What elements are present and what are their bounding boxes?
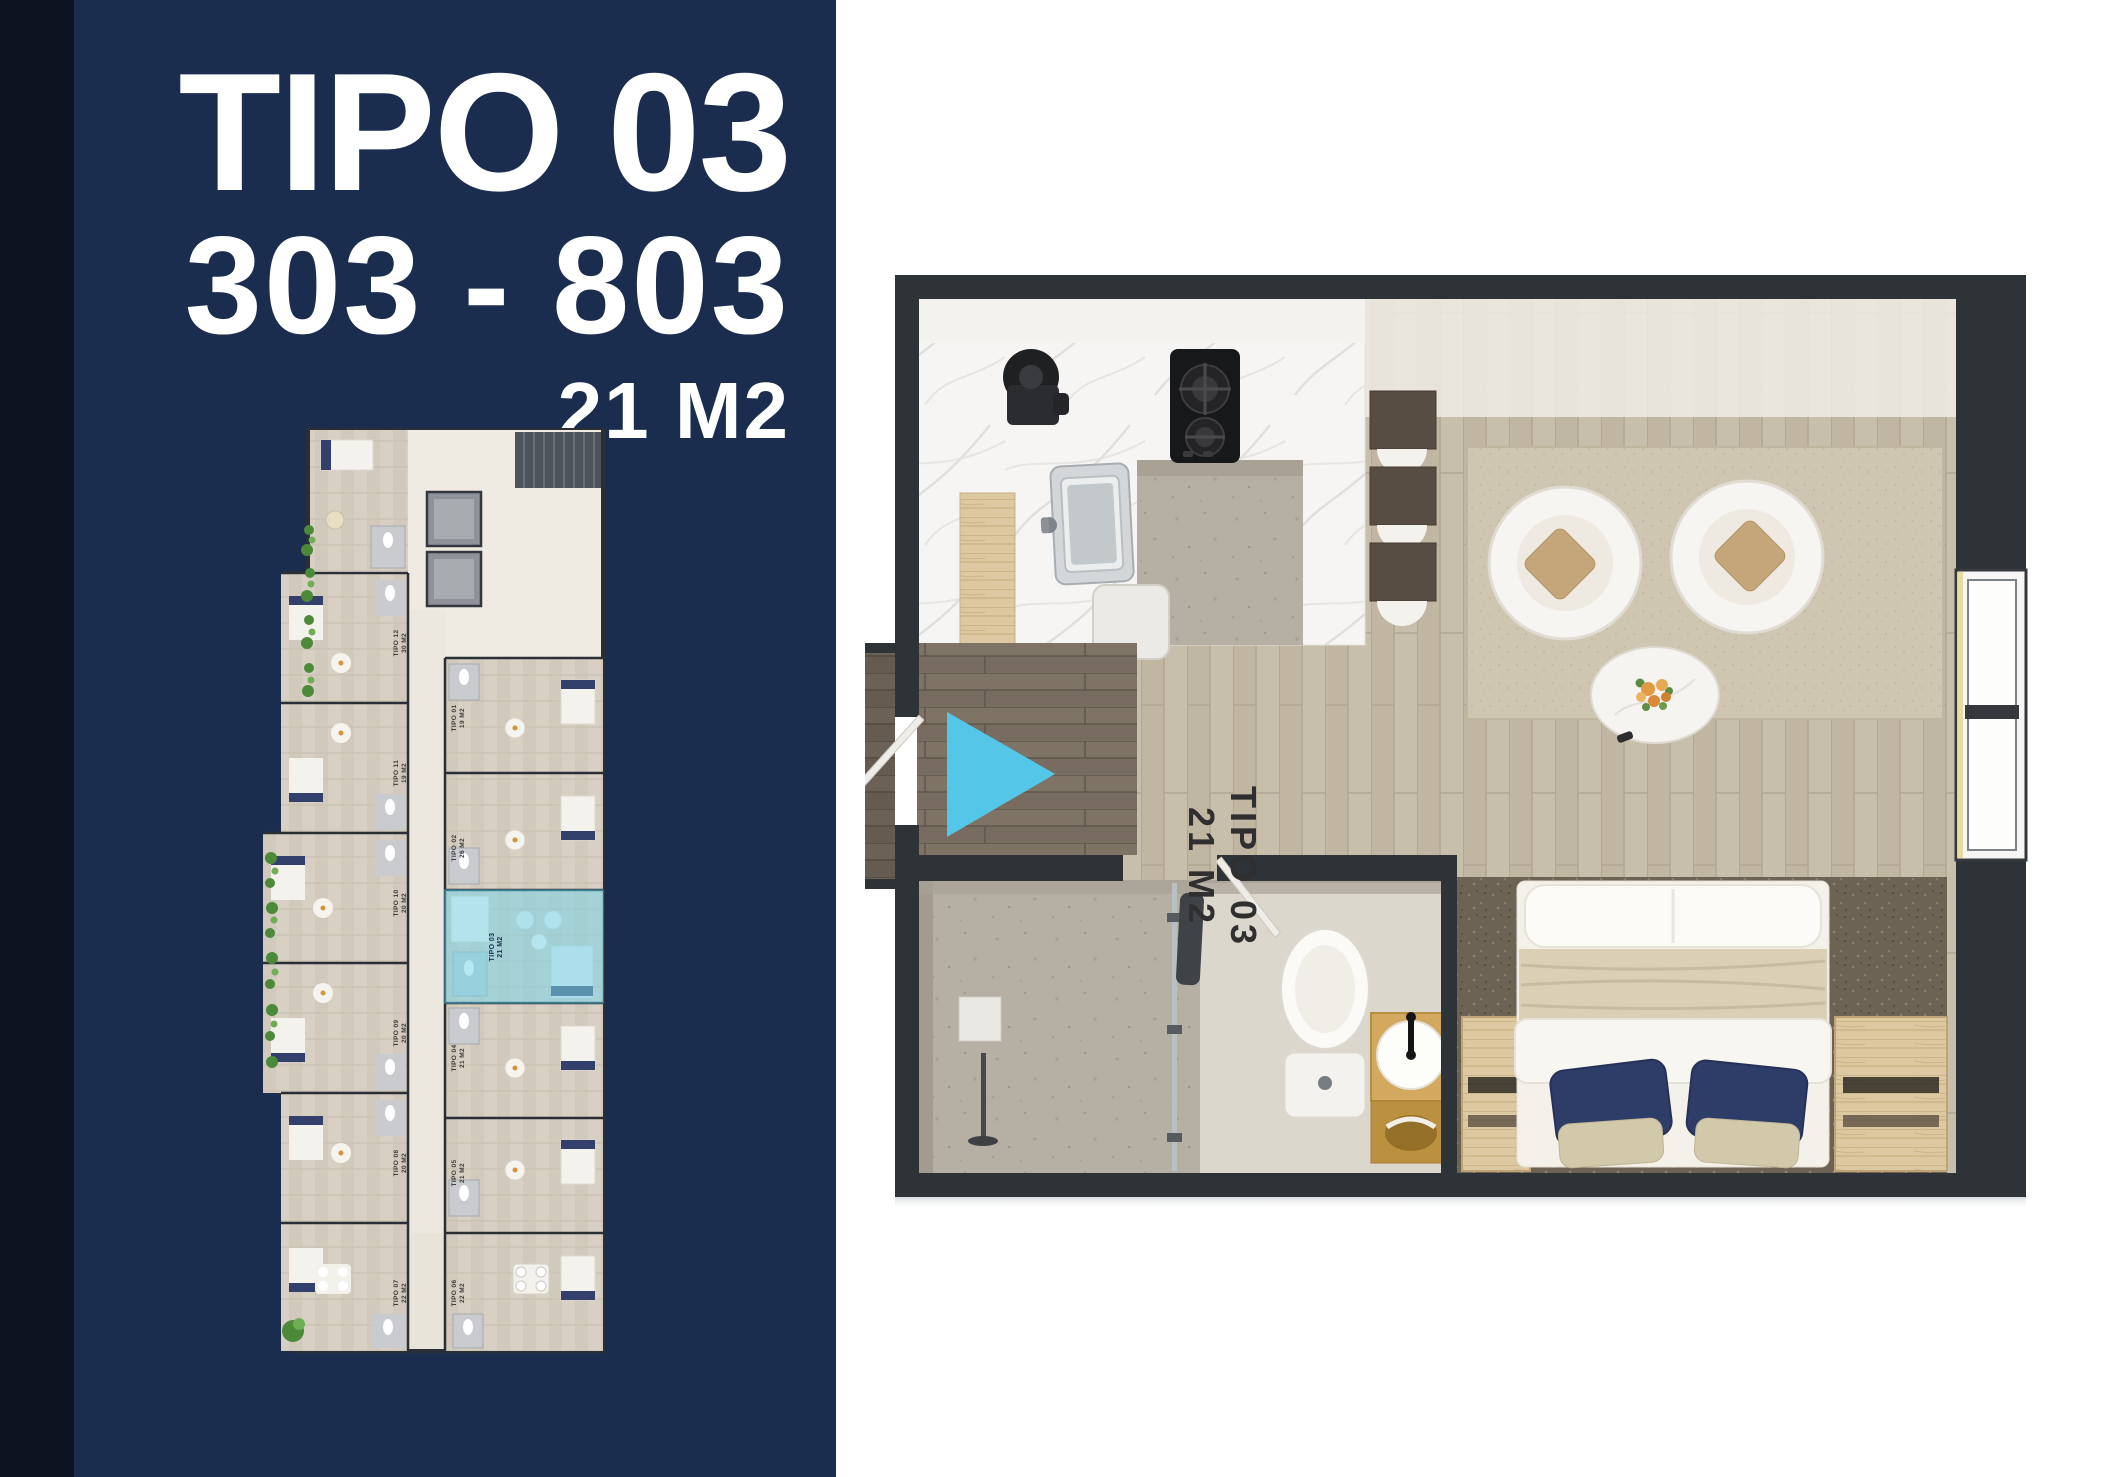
stairs	[515, 432, 601, 488]
ceiling-light-band	[1365, 297, 1956, 417]
plan-shadow	[895, 1197, 2026, 1209]
unit-label: TIPO 02	[451, 834, 458, 861]
brochure-page: TIPO 03 303 - 803 21 M2	[0, 0, 2103, 1477]
unit-label: 19 M2	[401, 763, 408, 783]
armchair	[1671, 481, 1823, 633]
title-block: TIPO 03 303 - 803 21 M2	[178, 48, 790, 451]
unit-label: TIPO 06	[451, 1279, 458, 1306]
left-info-panel: TIPO 03 303 - 803 21 M2	[74, 0, 836, 1477]
armchair	[1489, 487, 1641, 639]
pantry-cabinet	[960, 493, 1015, 645]
kitchen	[917, 297, 1365, 659]
window	[1956, 570, 2026, 860]
mini-units-left	[263, 573, 408, 1351]
unit-label: 26 M2	[459, 838, 466, 858]
mini-units-right	[445, 658, 603, 1351]
vanity-sink	[1371, 1012, 1451, 1163]
beige-pillow	[1694, 1117, 1801, 1168]
unit-area-label-line2: 21 M2	[1181, 807, 1222, 927]
unit-label: 20 M2	[401, 1153, 408, 1173]
bar-stool	[1370, 391, 1436, 449]
unit-label: TIPO 04	[451, 1044, 458, 1071]
unit-area-label: TIPO 03 21 M2	[1181, 786, 1264, 948]
unit-label: 19 M2	[459, 708, 466, 728]
bar-stool	[1370, 543, 1436, 601]
toilet	[1281, 929, 1369, 1117]
unit-label: TIPO 11	[393, 760, 400, 787]
corridor	[410, 610, 445, 1233]
main-floor-plan: TIPO 03 21 M2	[865, 265, 2045, 1215]
unit-label: 20 M2	[401, 1023, 408, 1043]
unit-label: 20 M2	[401, 893, 408, 913]
unit-label: TIPO 01	[451, 704, 458, 731]
mini-unit	[310, 430, 408, 571]
unit-label: TIPO 12	[393, 629, 400, 656]
beige-pillow	[1558, 1117, 1665, 1168]
unit-label: TIPO 05	[451, 1159, 458, 1186]
page-title: TIPO 03	[178, 48, 790, 216]
cooktop	[1170, 349, 1240, 463]
unit-label: 22 M2	[459, 1283, 466, 1303]
unit-label: 21 M2	[459, 1163, 466, 1183]
bar-stool	[1370, 467, 1436, 525]
unit-label: 21 M2	[459, 1048, 466, 1068]
highlighted-unit-label: 21 M2	[497, 936, 504, 957]
bed	[1515, 881, 1831, 1169]
units-range: 303 - 803	[178, 216, 790, 355]
coffee-table	[1591, 647, 1719, 743]
highlighted-unit-label: TIPO 03	[489, 933, 496, 962]
mini-floor-plan: TIPO 1230 M2 TIPO 1119 M2 TIPO 1020 M2 T…	[263, 428, 605, 1353]
nightstand-bench	[1835, 1017, 1947, 1171]
highlighted-unit	[445, 890, 603, 1003]
unit-label: TIPO 07	[393, 1279, 400, 1306]
unit-label: TIPO 10	[393, 889, 400, 916]
unit-label: TIPO 09	[393, 1019, 400, 1046]
bar-stools	[1370, 391, 1436, 626]
unit-label: 22 M2	[401, 1283, 408, 1303]
unit-label: 30 M2	[401, 633, 408, 653]
left-edge-strip	[0, 0, 74, 1477]
unit-area-label-line1: TIPO 03	[1223, 786, 1264, 948]
unit-label: TIPO 08	[393, 1149, 400, 1176]
